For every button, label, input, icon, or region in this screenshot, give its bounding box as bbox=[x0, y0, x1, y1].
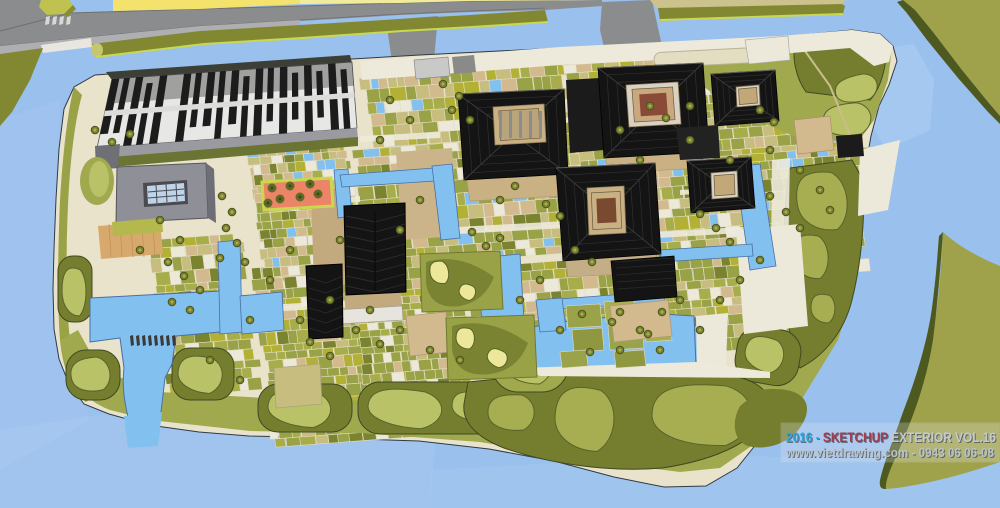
svg-text:www.vietdrawing.com - 0943 06: www.vietdrawing.com - 0943 06 06-08 bbox=[785, 446, 994, 460]
svg-text:2016 - SKETCHUP EXTERIOR VOL.1: 2016 - SKETCHUP EXTERIOR VOL.16 bbox=[786, 429, 996, 445]
